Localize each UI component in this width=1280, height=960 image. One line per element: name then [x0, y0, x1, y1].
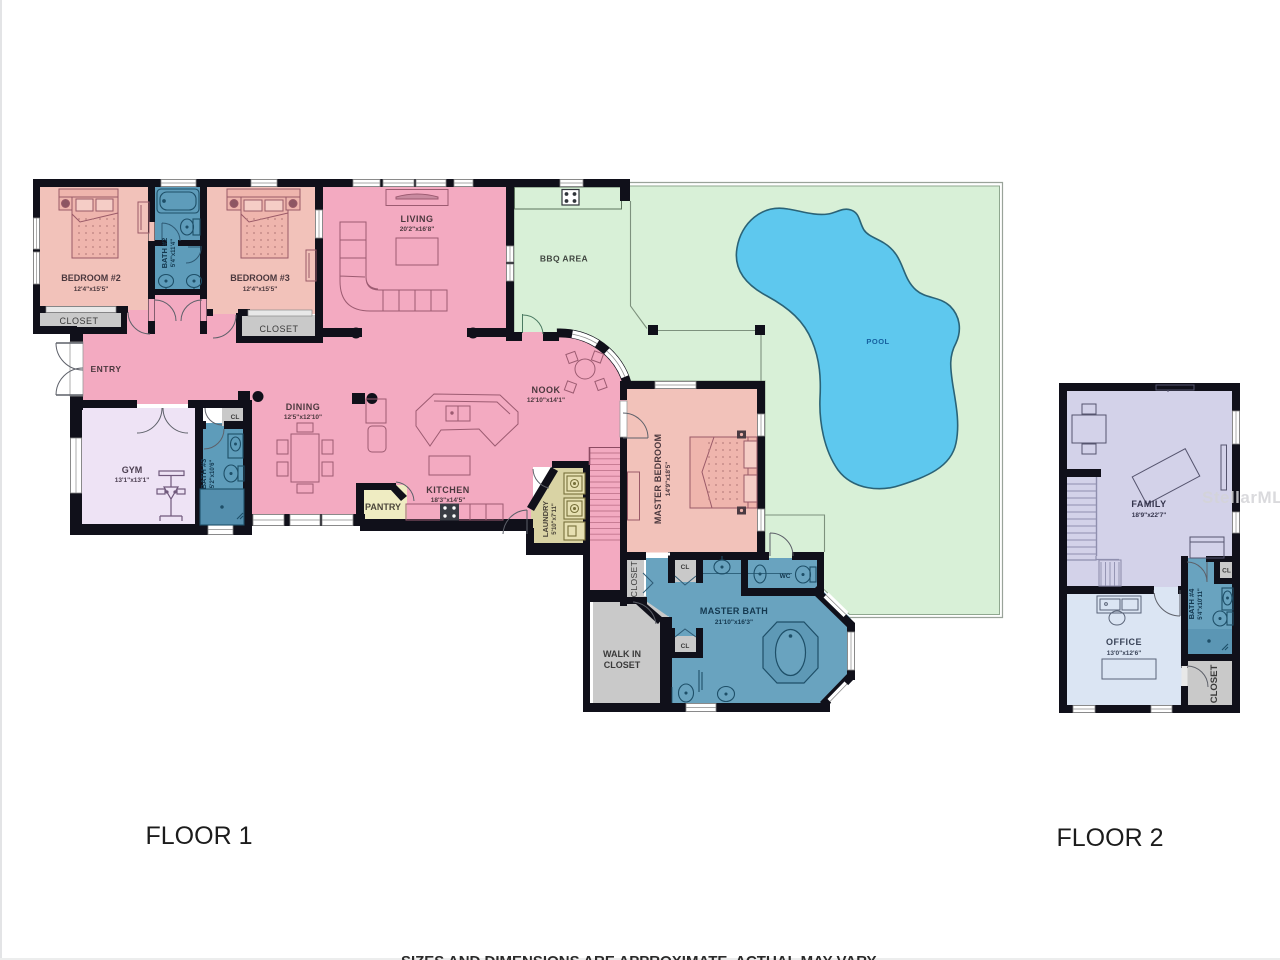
svg-text:LIVING: LIVING — [400, 214, 433, 224]
svg-text:CL: CL — [1222, 568, 1231, 575]
svg-text:MASTER BATH: MASTER BATH — [700, 606, 768, 616]
svg-text:CLOSET: CLOSET — [259, 324, 298, 334]
svg-text:PANTRY: PANTRY — [365, 502, 401, 512]
svg-text:20'2"x16'8": 20'2"x16'8" — [400, 226, 435, 233]
svg-text:DINING: DINING — [286, 402, 321, 412]
svg-text:SIZES AND DIMENSIONS ARE APPRO: SIZES AND DIMENSIONS ARE APPROXIMATE, AC… — [401, 953, 879, 960]
svg-text:KITCHEN: KITCHEN — [426, 485, 470, 495]
svg-text:GYM: GYM — [122, 465, 143, 475]
svg-text:CLOSET: CLOSET — [604, 660, 641, 670]
svg-text:CLOSET: CLOSET — [629, 561, 639, 597]
svg-text:OFFICE: OFFICE — [1106, 637, 1142, 647]
svg-text:BEDROOM #2: BEDROOM #2 — [61, 273, 121, 283]
svg-text:5'4"x10'11": 5'4"x10'11" — [1198, 588, 1204, 620]
svg-text:FAMILY: FAMILY — [1131, 499, 1166, 509]
svg-text:BATH #2: BATH #2 — [160, 238, 169, 269]
svg-text:21'10"x16'3": 21'10"x16'3" — [715, 619, 753, 626]
svg-text:5'4"x11'4": 5'4"x11'4" — [171, 239, 177, 267]
svg-text:BATH #3: BATH #3 — [199, 459, 208, 490]
svg-text:WALK IN: WALK IN — [603, 649, 641, 659]
svg-text:14'9"x18'5": 14'9"x18'5" — [665, 462, 672, 497]
svg-text:18'9"x22'7": 18'9"x22'7" — [1132, 512, 1167, 519]
svg-text:ENTRY: ENTRY — [91, 364, 122, 374]
svg-text:NOOK: NOOK — [532, 385, 561, 395]
svg-text:FLOOR 1: FLOOR 1 — [146, 822, 253, 850]
svg-text:BBQ AREA: BBQ AREA — [540, 254, 588, 264]
svg-text:BATH #4: BATH #4 — [1187, 588, 1196, 620]
svg-text:12'10"x14'1": 12'10"x14'1" — [527, 397, 565, 404]
svg-text:13'1"x13'1": 13'1"x13'1" — [115, 477, 150, 484]
svg-text:WC: WC — [780, 573, 791, 580]
svg-text:13'0"x12'6": 13'0"x12'6" — [1107, 650, 1142, 657]
svg-text:CL: CL — [681, 564, 690, 571]
svg-text:5'2"x10'6": 5'2"x10'6" — [210, 460, 216, 489]
svg-text:12'4"x15'5": 12'4"x15'5" — [243, 286, 278, 293]
svg-text:CL: CL — [231, 414, 240, 421]
svg-text:12'4"x15'5": 12'4"x15'5" — [74, 286, 109, 293]
svg-text:MASTER BEDROOM: MASTER BEDROOM — [653, 434, 663, 524]
svg-text:FLOOR 2: FLOOR 2 — [1057, 824, 1164, 852]
svg-text:18'3"x14'5": 18'3"x14'5" — [431, 497, 466, 504]
svg-text:CL: CL — [681, 643, 690, 650]
svg-text:StellarMLS: StellarMLS — [1202, 488, 1280, 507]
svg-text:CLOSET: CLOSET — [59, 316, 98, 326]
svg-text:BEDROOM #3: BEDROOM #3 — [230, 273, 290, 283]
svg-text:12'5"x12'10": 12'5"x12'10" — [284, 414, 322, 421]
svg-text:CLOSET: CLOSET — [1209, 665, 1220, 704]
svg-text:POOL: POOL — [866, 337, 889, 346]
svg-text:LAUNDRY: LAUNDRY — [541, 501, 550, 537]
svg-text:5'10"x7'11": 5'10"x7'11" — [552, 503, 558, 535]
